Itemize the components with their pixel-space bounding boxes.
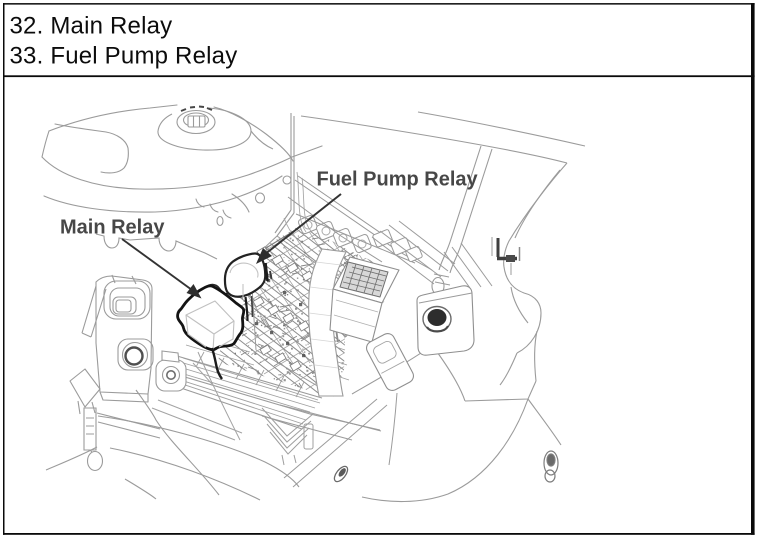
svg-text:Fuel Pump Relay: Fuel Pump Relay: [317, 169, 479, 191]
svg-text:32. Main Relay: 32. Main Relay: [10, 13, 173, 40]
svg-text:Main Relay: Main Relay: [60, 217, 165, 239]
svg-text:33. Fuel Pump Relay: 33. Fuel Pump Relay: [10, 43, 238, 70]
